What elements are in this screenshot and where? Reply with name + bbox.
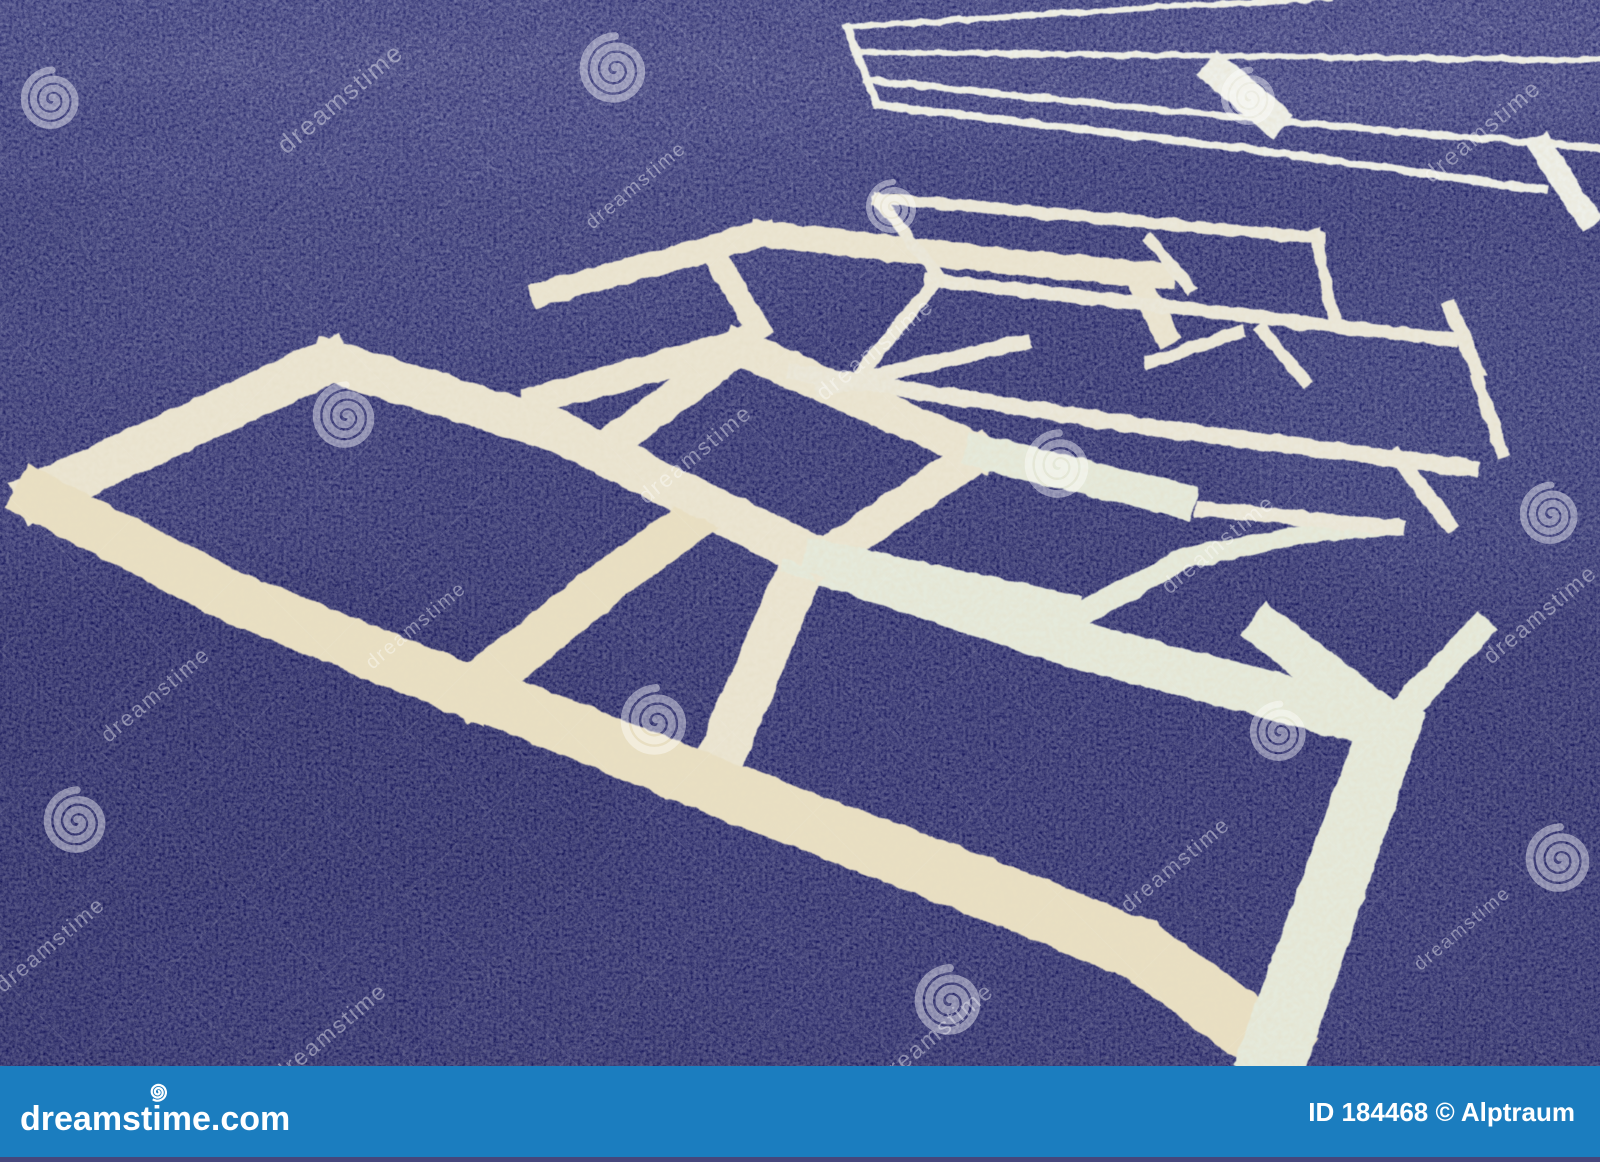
svg-text:ID 184468 © Alptraum: ID 184468 © Alptraum <box>1308 1097 1575 1127</box>
svg-text:dreamstime.com: dreamstime.com <box>20 1100 290 1138</box>
